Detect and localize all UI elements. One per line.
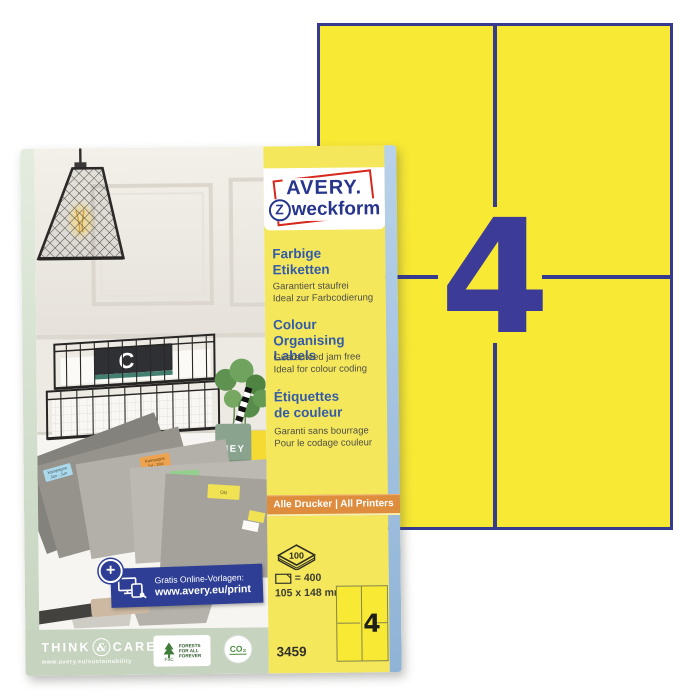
product-box: C [20, 145, 401, 676]
diagram-count: 4 [363, 609, 381, 638]
fsc-slogan: FORESTS FOR ALL FOREVER [179, 643, 201, 659]
product-title-fr: Étiquettes de couleur [274, 389, 343, 421]
sustainability-url: www.avery.eu/sustainability [42, 659, 157, 666]
sheet-count: 100 [289, 551, 304, 561]
title-de-line2: Etiketten [272, 261, 329, 277]
sheet-count-icon: 100 [274, 542, 318, 575]
fsc-acronym: FSC [165, 656, 175, 661]
devices-icon [117, 575, 152, 600]
label-icon [275, 573, 292, 584]
title-fr-line1: Étiquettes [274, 389, 342, 405]
product-packshot: 4 [0, 0, 700, 700]
title-de-line1: Farbige [272, 246, 329, 262]
subtitle-fr-line1: Garanti sans bourrage [274, 425, 372, 438]
label-count: = 400 [295, 572, 322, 584]
brand-name-zweckform: Zweckform [265, 198, 383, 221]
folder-label-text: Okt [220, 490, 228, 495]
sustainability-band: THINK & CARE www.avery.eu/sustainability… [25, 627, 268, 676]
brand-logo: AVERY. Zweckform [263, 167, 385, 230]
subtitle-en-line2: Ideal for colour coding [274, 363, 368, 375]
think-and-care-logo: THINK & CARE www.avery.eu/sustainability [41, 638, 157, 666]
online-templates-banner: Gratis Online-Vorlagen: www.avery.eu/pri… [110, 564, 263, 608]
labels-per-sheet-number: 4 [440, 199, 550, 357]
title-fr-line2: de couleur [274, 404, 342, 420]
layout-diagram: 4 [336, 585, 389, 662]
subtitle-fr-line2: Pour le codage couleur [274, 437, 372, 450]
think-text: THINK [41, 640, 90, 655]
title-en-line1: Colour Organising [273, 316, 386, 348]
subtitle-en-line1: Guaranteed jam free [273, 351, 367, 363]
co2-text: CO₂ [230, 644, 247, 655]
brand-name-zweckform-rest: weckform [291, 198, 380, 220]
sheet-divider-vertical-top [493, 26, 497, 207]
notebook-letter: C [118, 348, 134, 374]
label-count-row: = 400 [275, 572, 322, 584]
subtitle-en: Guaranteed jam free Ideal for colour cod… [273, 351, 367, 375]
promo-text: Gratis Online-Vorlagen: www.avery.eu/pri… [154, 572, 251, 598]
plus-icon: + [99, 559, 123, 583]
promo-url: www.avery.eu/print [155, 583, 251, 598]
info-panel: AVERY. Zweckform Farbige Etiketten Garan… [263, 145, 390, 673]
label-size: 105 x 148 mm [275, 587, 343, 600]
care-text: CARE [113, 640, 157, 654]
sheet-divider-vertical-bottom [493, 343, 497, 527]
brand-name-avery: AVERY. [283, 177, 365, 199]
fsc-badge: FSC FORESTS FOR ALL FOREVER [153, 635, 210, 667]
subtitle-de: Garantiert staufrei Ideal zur Farbcodier… [273, 280, 374, 304]
fsc-tree-icon: FSC [163, 641, 176, 661]
ampersand-circle-icon: & [93, 638, 111, 656]
all-printers-banner: Alle Drucker | All Printers [267, 494, 400, 516]
subtitle-de-line2: Ideal zur Farbcodierung [273, 292, 373, 305]
product-code: 3459 [276, 644, 306, 659]
co2-badge: CO₂ [223, 635, 252, 664]
diagram-hline-left [337, 622, 360, 623]
product-title-de: Farbige Etiketten [272, 246, 329, 278]
subtitle-fr: Garanti sans bourrage Pour le codage cou… [274, 425, 372, 449]
z-circle-icon: Z [268, 199, 290, 221]
sheet-divider-horizontal-right [542, 275, 670, 279]
fsc-line3: FOREVER [179, 653, 201, 658]
